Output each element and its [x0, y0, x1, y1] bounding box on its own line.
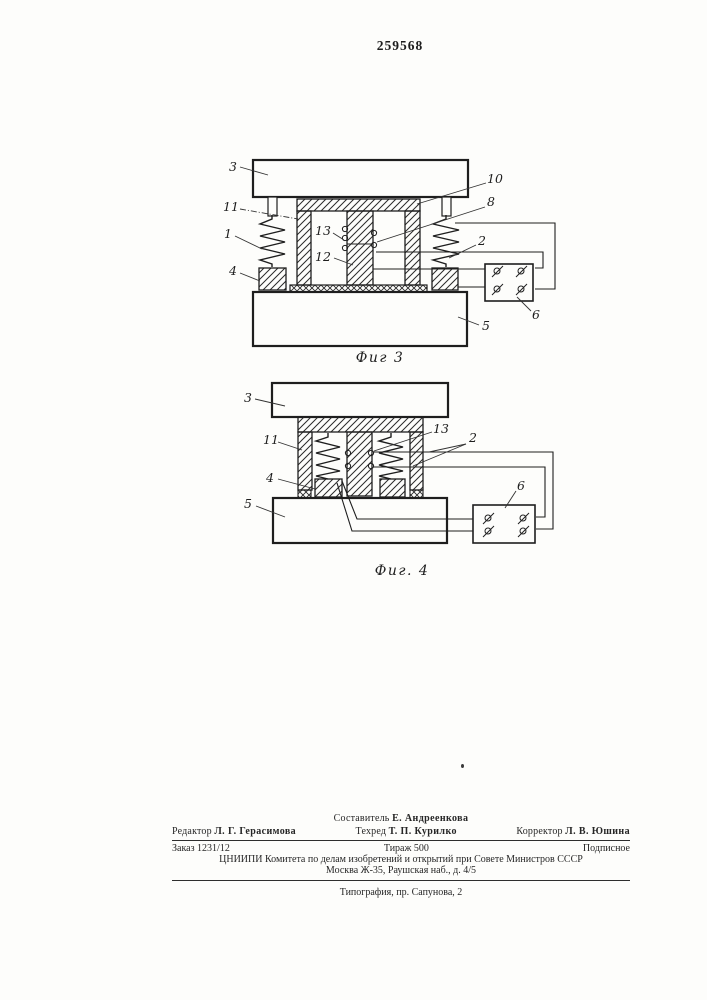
fig3-right-column: [405, 211, 420, 285]
fig4-lower-plate: [273, 498, 447, 543]
editor-role: Редактор: [172, 826, 212, 837]
fig4-top-bar: [298, 417, 423, 432]
fig4-right-spring: [379, 433, 403, 479]
fig4-label-13: 13: [433, 421, 449, 436]
figure-3: 3 10 11 1 13 8 12 2 4 6 5 Фиг 3: [223, 159, 555, 366]
editors-line: Редактор Л. Г. Герасимова Техред Т. П. К…: [172, 826, 630, 837]
fig4-caption: Фиг. 4: [375, 563, 430, 579]
fig4-left-block: [315, 479, 342, 497]
fig4-right-block: [380, 479, 405, 497]
fig3-label-3: 3: [229, 159, 237, 174]
printer-line: Типография, пр. Сапунова, 2: [172, 887, 630, 898]
publisher-line2: Москва Ж-35, Раушская наб., д. 4/5: [172, 865, 630, 876]
fig4-label-4: 4: [265, 470, 274, 485]
patent-page: 259568: [0, 0, 707, 1000]
fig3-switch-box: [485, 264, 533, 301]
fig3-label-8: 8: [487, 194, 495, 209]
proofreader-role: Корректор: [516, 826, 562, 837]
fig4-label-2: 2: [468, 430, 477, 445]
editor-name: Л. Г. Герасимова: [214, 826, 296, 837]
compiler-name: Е. Андреенкова: [392, 813, 468, 824]
figure-4: 3 13 11 2 4 5 6 Фиг. 4: [244, 383, 553, 579]
fig4-label-3: 3: [244, 390, 252, 405]
fig3-upper-plate: [253, 160, 468, 197]
fig4-label-5: 5: [244, 496, 252, 511]
compiler-role: Составитель: [334, 813, 390, 824]
fig4-right-foot: [410, 490, 423, 498]
fig3-label-12: 12: [315, 249, 331, 264]
fig3-middle-column: [347, 211, 373, 285]
fig4-label-11: 11: [263, 432, 279, 447]
fig3-left-spring: [260, 215, 285, 267]
tech-editor-name: Т. П. Курилко: [389, 826, 457, 837]
tech-editor-role: Техред: [356, 826, 387, 837]
fig3-right-block: [432, 268, 458, 290]
fig4-right-column: [410, 432, 423, 490]
fig4-left-column: [298, 432, 312, 490]
order-line: Заказ 1231/12 Тираж 500 Подписное: [172, 843, 630, 854]
fig3-right-rod: [442, 197, 451, 216]
fig3-label-4: 4: [228, 263, 237, 278]
fig4-switch-box: [473, 505, 535, 543]
fig3-left-rod: [268, 197, 277, 216]
fig4-left-spring: [316, 433, 340, 479]
fig3-caption: Фиг 3: [356, 350, 405, 366]
fig3-label-5: 5: [482, 318, 490, 333]
tech-editor: Техред Т. П. Курилко: [356, 826, 457, 837]
rule-bottom: [172, 880, 630, 881]
fig3-label-10: 10: [487, 171, 503, 186]
compiler-line: Составитель Е. Андреенкова: [172, 813, 630, 824]
colophon: Составитель Е. Андреенкова Редактор Л. Г…: [172, 813, 630, 898]
fig4-left-foot: [298, 490, 311, 498]
patent-drawings: 3 10 11 1 13 8 12 2 4 6 5 Фиг 3: [0, 0, 707, 640]
fig3-label-11: 11: [223, 199, 239, 214]
fig4-label-6: 6: [517, 478, 525, 493]
proofreader: Корректор Л. В. Юшина: [516, 826, 630, 837]
publisher-line1: ЦНИИПИ Комитета по делам изобретений и о…: [172, 854, 630, 865]
proofreader-name: Л. В. Юшина: [565, 826, 630, 837]
fig3-label-1: 1: [224, 226, 232, 241]
fig3-label-13: 13: [315, 223, 331, 238]
print-run: Тираж 500: [384, 843, 429, 854]
fig3-lower-plate: [253, 292, 467, 346]
rule-top: [172, 840, 630, 841]
fig3-label-6: 6: [532, 307, 540, 322]
fig3-label-2: 2: [477, 233, 486, 248]
order-number: Заказ 1231/12: [172, 843, 230, 854]
fig4-upper-plate: [272, 383, 448, 417]
stray-ink-dot: [461, 764, 464, 768]
fig3-top-bar: [297, 199, 420, 211]
subscription: Подписное: [583, 843, 630, 854]
fig4-middle-column: [347, 432, 372, 496]
fig3-left-block: [259, 268, 286, 290]
fig3-left-column: [297, 211, 311, 285]
editor: Редактор Л. Г. Герасимова: [172, 826, 296, 837]
